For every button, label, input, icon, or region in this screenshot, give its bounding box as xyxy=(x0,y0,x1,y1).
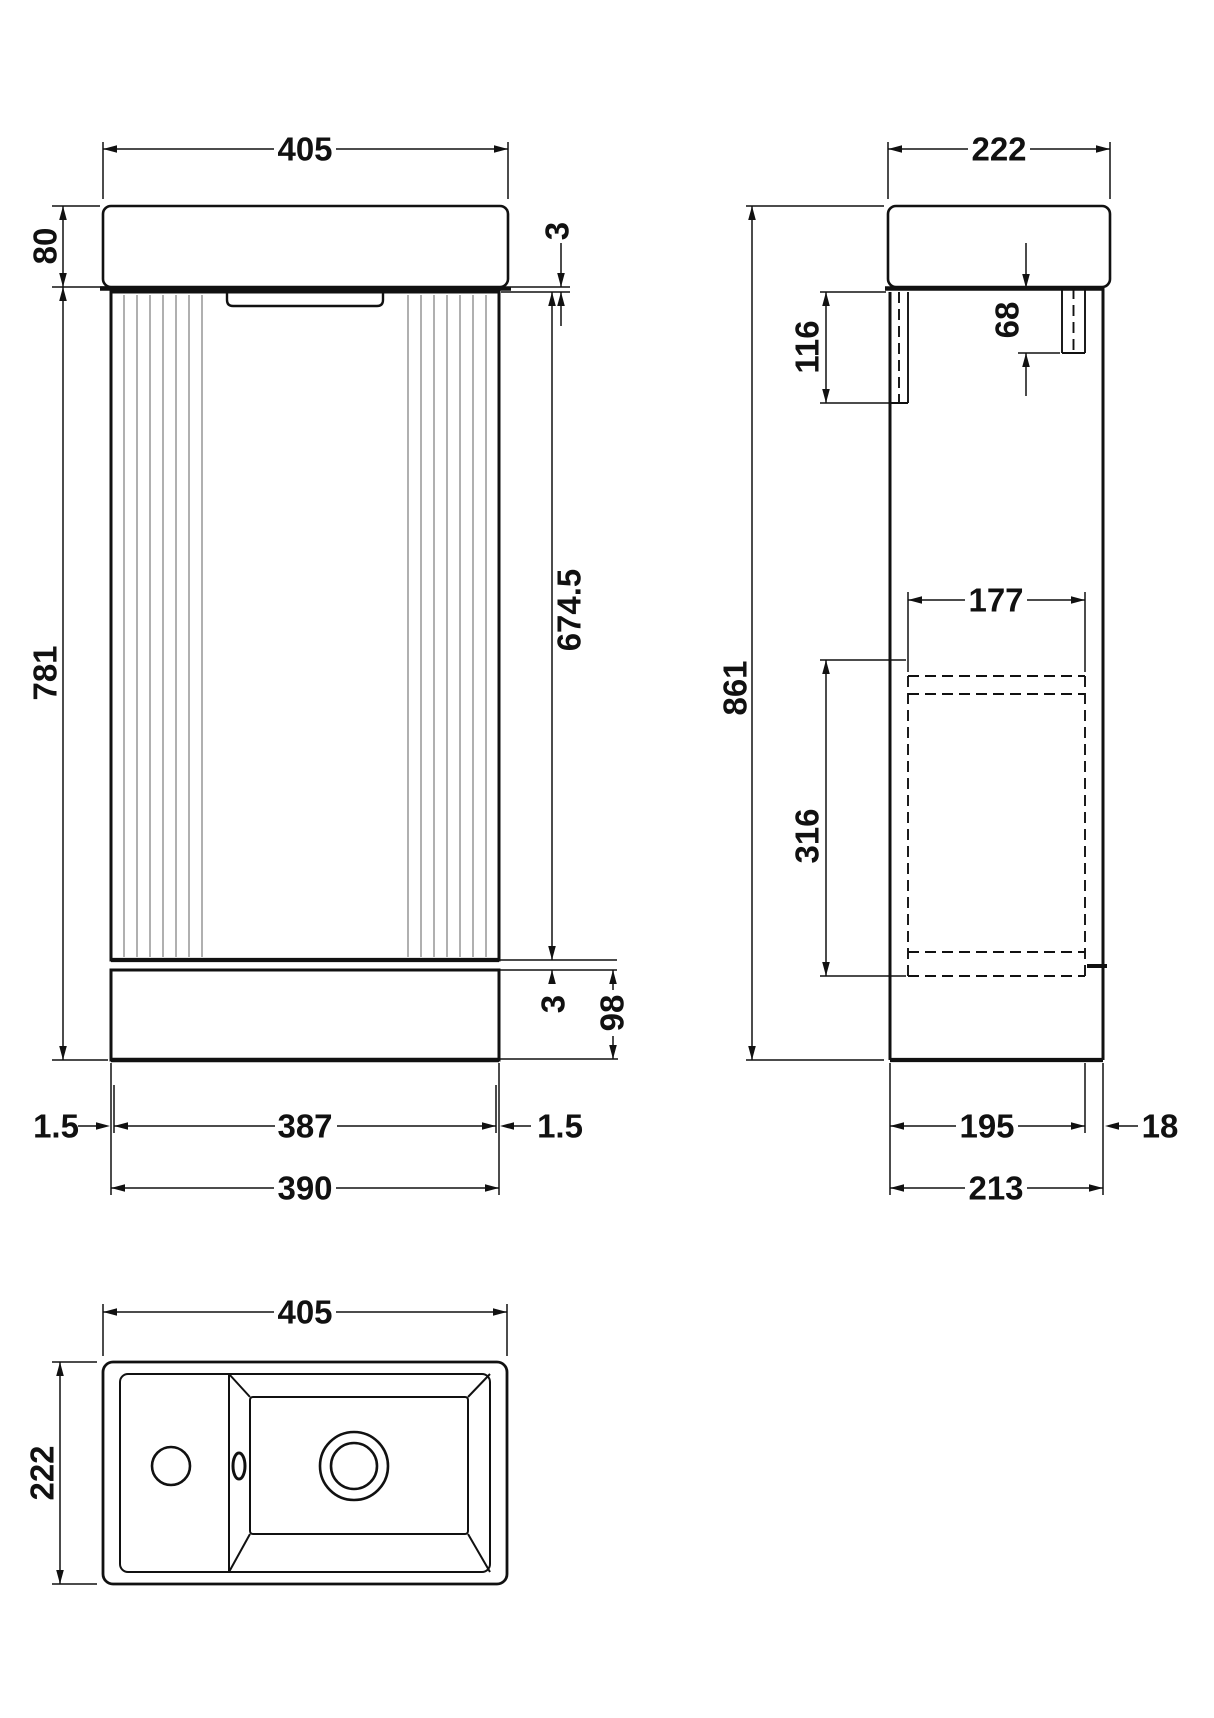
front-plinth xyxy=(111,970,499,1060)
side-internal-shelf-hidden-lines xyxy=(908,676,1085,976)
dim-label-front-top-gap: 3 xyxy=(539,222,576,240)
dim-label-front-door-height: 674.5 xyxy=(551,569,588,652)
front-door-fluting-left xyxy=(124,295,202,957)
plan-dimension-arrowheads xyxy=(56,1308,507,1584)
dim-label-front-plinth-height: 98 xyxy=(594,995,631,1032)
plan-overflow-hole xyxy=(233,1453,245,1479)
front-dimension-arrowheads xyxy=(59,145,617,1192)
side-basin xyxy=(888,206,1110,287)
plan-basin-outline xyxy=(103,1362,507,1584)
front-basin xyxy=(103,206,508,287)
front-door-fluting-right xyxy=(408,295,486,957)
plan-bowl-slope-lines xyxy=(229,1374,490,1572)
plan-tap-hole xyxy=(152,1447,190,1485)
dim-label-front-basin-height: 80 xyxy=(27,228,64,265)
dim-label-plan-depth: 222 xyxy=(24,1445,61,1500)
dim-label-front-cabinet-width: 390 xyxy=(277,1170,332,1207)
dim-label-front-bottom-gap: 3 xyxy=(535,995,572,1013)
dim-label-front-door-width: 387 xyxy=(277,1108,332,1145)
vanity-unit-technical-drawing: 405 80 3 781 674.5 3 98 1.5 387 1.5 390 … xyxy=(0,0,1214,1718)
dim-label-side-internal-width: 177 xyxy=(968,582,1023,619)
dim-label-side-front-bracket-height: 116 xyxy=(789,320,826,373)
dim-label-side-back-bracket-height: 68 xyxy=(989,302,1026,339)
plan-view xyxy=(103,1362,507,1584)
front-door-handle-recess xyxy=(227,293,383,306)
plan-bowl-base xyxy=(250,1397,468,1534)
dim-label-side-back-gap: 18 xyxy=(1142,1108,1179,1145)
dim-label-front-left-reveal: 1.5 xyxy=(33,1108,79,1145)
dim-label-side-total-depth: 213 xyxy=(968,1170,1023,1207)
dim-label-front-width-top: 405 xyxy=(277,131,332,168)
side-dimension-lines xyxy=(746,142,1138,1195)
side-dimension-arrowheads xyxy=(748,145,1119,1192)
dim-label-front-cabinet-height: 781 xyxy=(27,645,64,700)
dim-label-side-internal-height: 316 xyxy=(789,808,826,863)
dim-label-side-total-height: 861 xyxy=(717,660,754,715)
dim-label-side-depth-top: 222 xyxy=(971,131,1026,168)
side-dimension-linework xyxy=(746,142,1138,1195)
front-elevation-view xyxy=(100,206,511,1060)
technical-drawing-page: 405 80 3 781 674.5 3 98 1.5 387 1.5 390 … xyxy=(0,0,1214,1718)
front-door xyxy=(111,292,499,960)
plan-waste-inner-circle xyxy=(331,1443,377,1489)
dim-label-side-body-depth: 195 xyxy=(959,1108,1014,1145)
dim-label-plan-width: 405 xyxy=(277,1294,332,1331)
dim-label-front-right-reveal: 1.5 xyxy=(537,1108,583,1145)
side-dimension-labels: 222 861 116 68 177 316 195 18 213 xyxy=(717,131,1179,1207)
plan-basin-inner-rim xyxy=(120,1374,490,1572)
